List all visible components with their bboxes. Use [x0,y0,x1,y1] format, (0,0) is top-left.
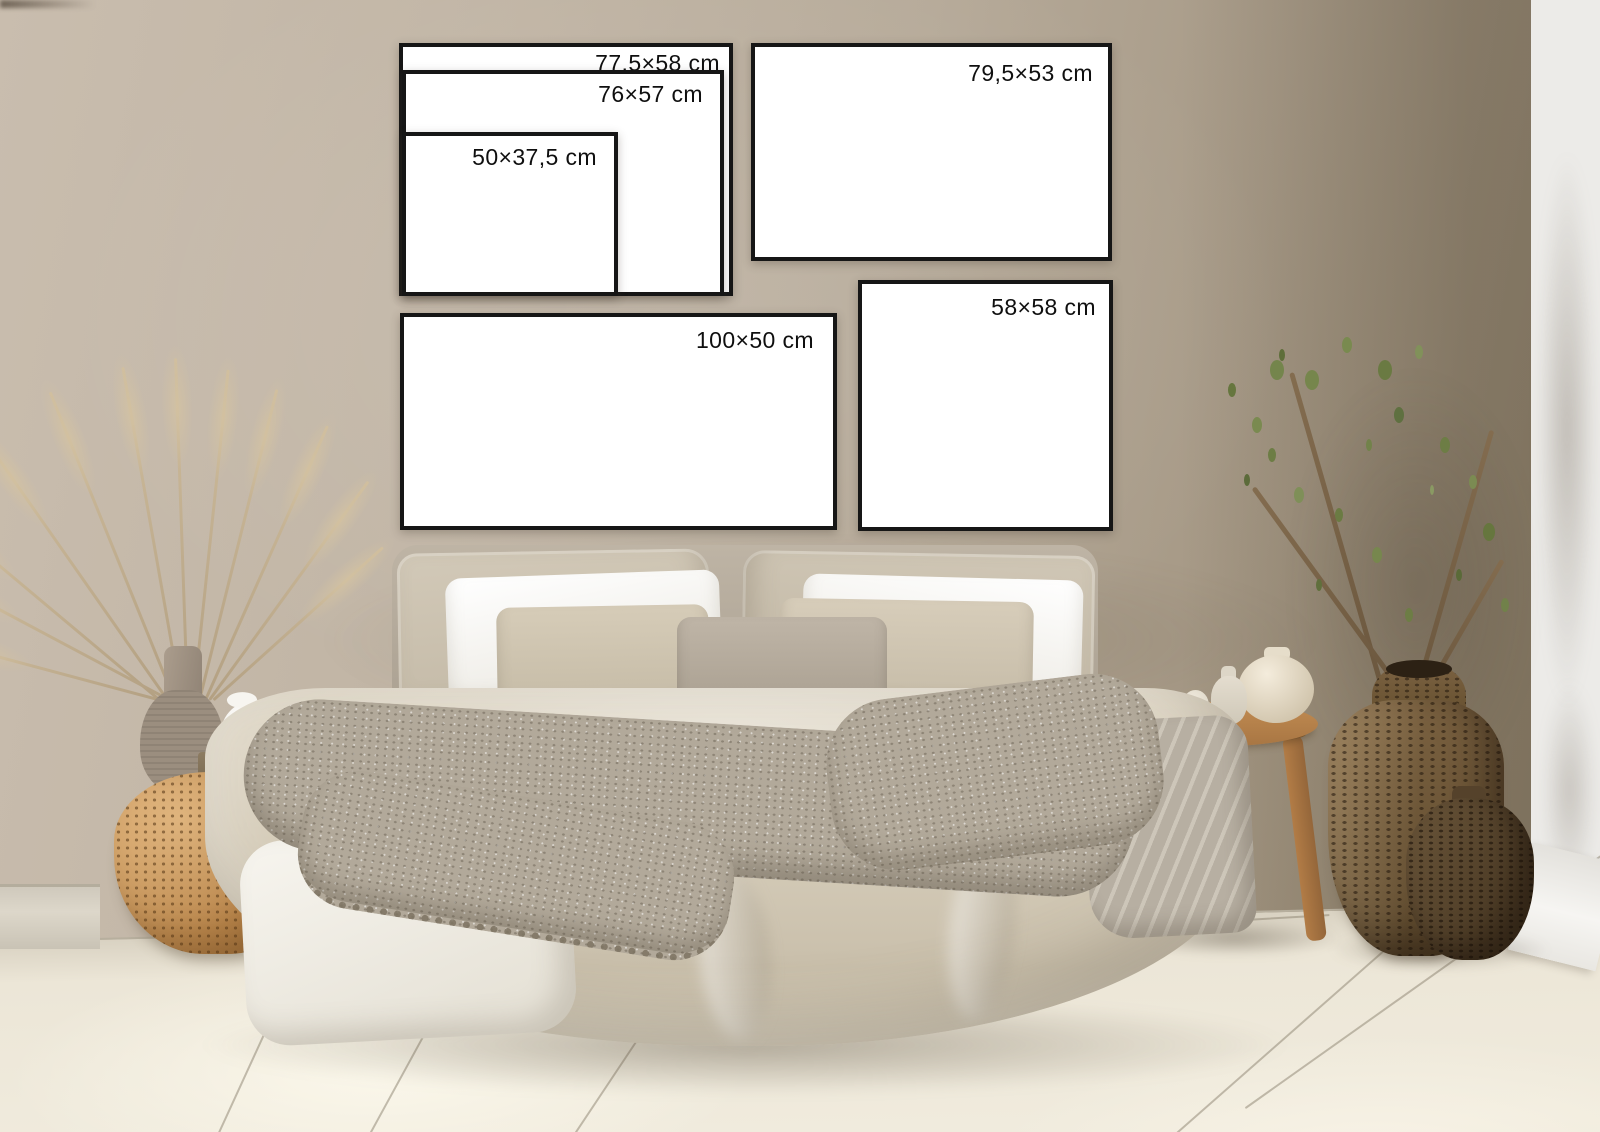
foliage [1270,360,1284,380]
pampas-grass [8,352,318,700]
top-left-shadow [0,0,95,8]
size-label-100x50: 100×50 cm [696,327,814,354]
size-frame-79x53: 79,5×53 cm [751,43,1112,261]
bedroom-frame-mockup-scene: 77,5×58 cm 76×57 cm 50×37,5 cm 79,5×53 c… [0,0,1600,1132]
size-frame-58x58: 58×58 cm [858,280,1113,531]
size-label-50x37: 50×37,5 cm [472,144,597,171]
pampas-strand [0,636,160,702]
size-frame-50x37: 50×37,5 cm [402,132,618,296]
size-frame-100x50: 100×50 cm [400,313,837,530]
size-label-79x53: 79,5×53 cm [968,60,1093,87]
pampas-strand [49,392,176,701]
size-label-76x57: 76×57 cm [598,81,703,108]
size-label-58x58: 58×58 cm [991,294,1096,321]
ceramic-sphere-vase [1238,655,1314,723]
woven-vase-large-mouth [1386,660,1452,678]
shadow-on-side-wall [1537,150,1597,710]
baseboard [0,884,100,949]
woven-floor-vase-small [1406,798,1534,960]
